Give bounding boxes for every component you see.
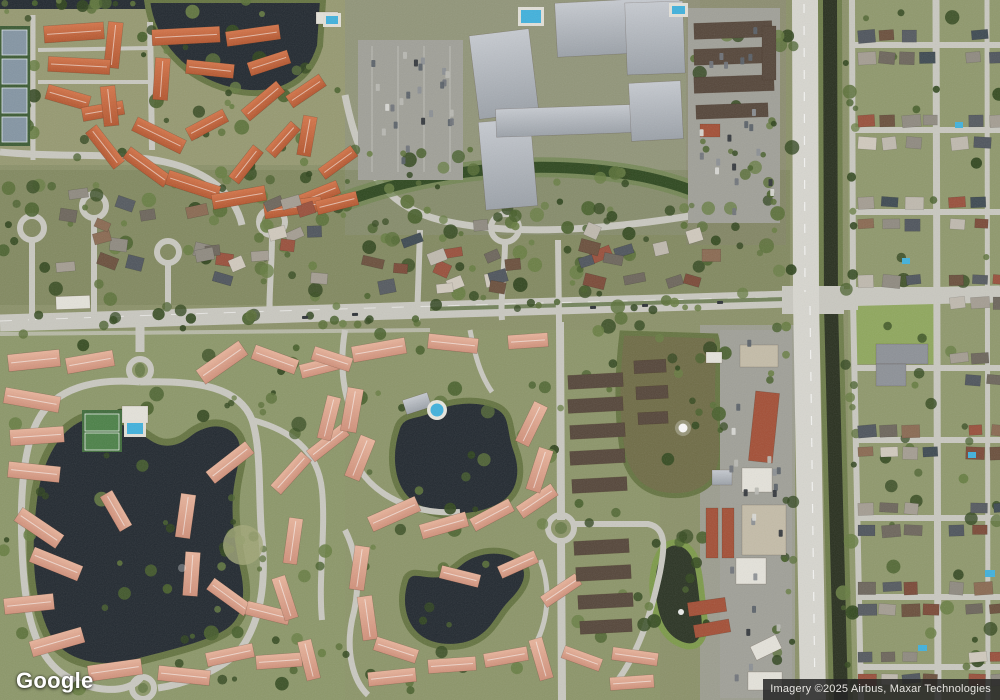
grain-overlay [0,0,1000,700]
satellite-map-view[interactable]: Google Imagery ©2025 Airbus, Maxar Techn… [0,0,1000,700]
imagery-attribution: Imagery ©2025 Airbus, Maxar Technologies [763,679,1000,700]
satellite-imagery [0,0,1000,700]
google-logo[interactable]: Google [16,668,94,694]
